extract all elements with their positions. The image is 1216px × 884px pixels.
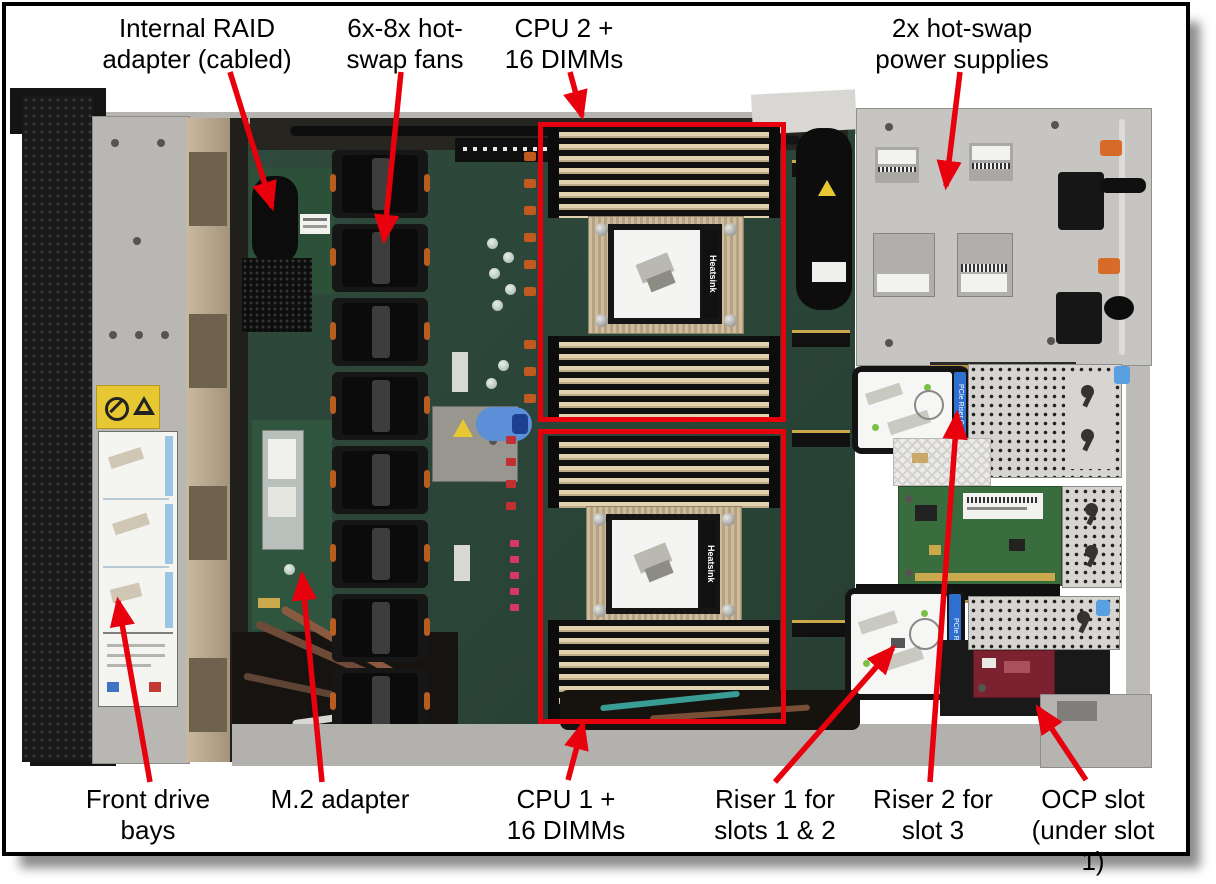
fan-module: [332, 150, 428, 218]
callout-psu: 2x hot-swap power supplies: [875, 13, 1048, 75]
touch-latch: [476, 407, 532, 441]
service-label-card: [98, 431, 178, 707]
led: [510, 572, 519, 579]
led: [510, 588, 519, 595]
callout-cpu2: CPU 2 + 16 DIMMs: [505, 13, 623, 75]
psu-handle-bar: [1100, 178, 1146, 193]
capacitor: [505, 284, 516, 295]
dimm-latch: [524, 260, 536, 269]
led: [510, 604, 519, 611]
psu-latch-tab: [1098, 258, 1120, 274]
fan-module: [332, 372, 428, 440]
psu-knob: [1104, 296, 1134, 320]
led: [510, 556, 519, 563]
psu-handle: [1056, 292, 1102, 344]
m2-screw: [284, 564, 295, 575]
white-header: [454, 545, 470, 581]
psu-window: [873, 233, 935, 297]
white-header: [452, 352, 468, 392]
callout-riser1: Riser 1 for slots 1 & 2: [714, 784, 835, 846]
fan-module: [332, 224, 428, 292]
fan-module: [332, 594, 428, 662]
nic-bracket: [1062, 486, 1122, 588]
dimm-latch: [524, 233, 536, 242]
callout-ocp: OCP slot (under slot 1): [1032, 784, 1155, 877]
raid-heatsink: [242, 258, 312, 332]
drive-backplane: [186, 118, 232, 762]
cpu1-highlight-box: [538, 429, 786, 724]
callout-cpu1: CPU 1 + 16 DIMMs: [507, 784, 625, 846]
capacitor: [503, 252, 514, 263]
dimm-latch: [524, 367, 536, 376]
drive-bay-cover: [92, 116, 190, 764]
fan-module: [332, 446, 428, 514]
capacitor: [486, 378, 497, 389]
capacitor: [492, 300, 503, 311]
dimm-latch: [524, 206, 536, 215]
callout-m2: M.2 adapter: [271, 784, 410, 815]
pcie-slot: [792, 620, 850, 637]
figure-canvas: Heatsink Heatsink: [0, 0, 1216, 884]
psu-window: [957, 233, 1013, 297]
led-clip: [506, 502, 516, 510]
ceramic-heatsink: [893, 438, 991, 486]
cable-tape-label: [812, 262, 846, 282]
riser1-blue-tab: [1096, 600, 1110, 616]
dimm-latch: [524, 287, 536, 296]
led-clip: [506, 436, 516, 444]
warning-sticker: [96, 385, 160, 429]
chassis-corner: [1040, 694, 1152, 768]
power-cable-bundle: [796, 128, 852, 310]
cpu2-highlight-box: [538, 122, 786, 422]
callout-internal-raid: Internal RAID adapter (cabled): [102, 13, 291, 75]
callout-riser2: Riser 2 for slot 3: [873, 784, 993, 846]
chassis-floor: [232, 724, 1150, 766]
raid-label: [300, 214, 330, 234]
fan-module: [332, 298, 428, 366]
led-clip: [506, 458, 516, 466]
psu-handle: [1058, 172, 1104, 230]
nic-card: [898, 486, 1062, 586]
m2-module: [262, 430, 304, 550]
m2-connector: [258, 598, 280, 608]
fan-module: [332, 520, 428, 588]
led: [510, 540, 519, 547]
dimm-latch: [524, 340, 536, 349]
capacitor: [498, 360, 509, 371]
raid-cable-loop: [252, 176, 298, 264]
front-bezel: [22, 96, 94, 762]
ocp-board: [973, 650, 1055, 698]
riser2-bracket: [968, 364, 1122, 478]
capacitor: [489, 268, 500, 279]
nic-label: [963, 493, 1043, 519]
capacitor: [487, 238, 498, 249]
warning-triangle: [818, 180, 836, 196]
riser2-blue-tab: [1114, 366, 1130, 384]
psu-label-window: [969, 143, 1013, 181]
pcie-slot: [792, 330, 850, 347]
dimm-latch: [524, 394, 536, 403]
psu-latch-tab: [1100, 140, 1122, 156]
callout-fans: 6x-8x hot- swap fans: [346, 13, 463, 75]
led-clip: [506, 480, 516, 488]
riser-cage-strip-text: PCIe Riser Cage: [954, 372, 966, 448]
dimm-latch: [524, 152, 536, 161]
pcie-slot: [792, 430, 850, 447]
psu-label-window: [875, 147, 919, 183]
callout-front-drive: Front drive bays: [86, 784, 210, 846]
dimm-latch: [524, 179, 536, 188]
